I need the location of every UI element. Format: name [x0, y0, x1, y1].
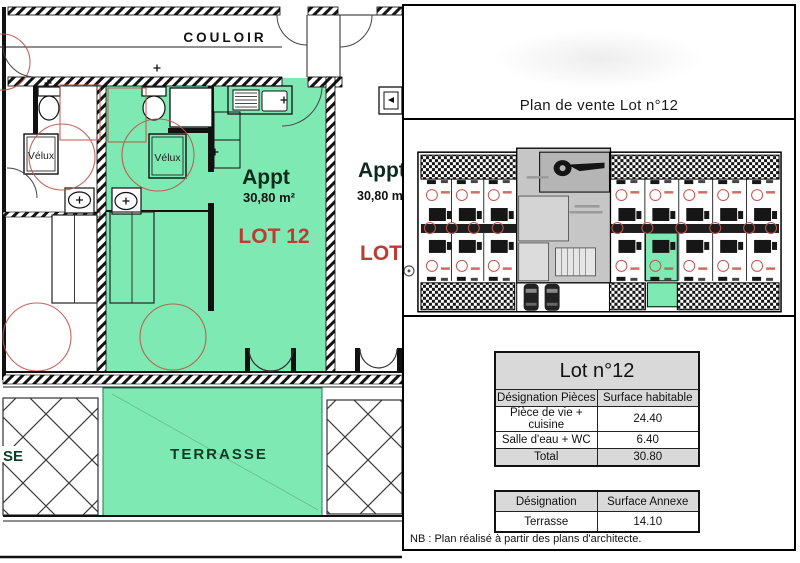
- annex-table-col2-header: Surface Annexe: [597, 491, 699, 512]
- lot12-label: LOT 12: [238, 225, 309, 248]
- annex-surface-table: Désignation Surface Annexe Terrasse 14.1…: [494, 490, 700, 533]
- central-core: [517, 148, 611, 283]
- neighbor-fixture: [379, 87, 402, 114]
- room-surface: 24.40: [597, 407, 699, 432]
- annex-table-col1-header: Désignation: [495, 491, 597, 512]
- neighbor-terrace-fragment: SE: [3, 448, 23, 465]
- total-label: Total: [495, 449, 597, 467]
- lot-table-col1-header: Désignation Pièces: [495, 390, 597, 407]
- velux-label-lot12: Vélux: [154, 152, 181, 164]
- architect-note: NB : Plan réalisé à partir des plans d'a…: [410, 533, 641, 545]
- neighbor-apartment-label: Appt: [358, 159, 402, 182]
- apartment-area-label: 30,80 m²: [243, 190, 296, 205]
- total-surface: 30.80: [597, 449, 699, 467]
- floor-plan-drawing: COULOIR Vélux Vélux Appt 30,80 m² LOT 12…: [0, 0, 402, 563]
- table-row-total: Total 30.80: [495, 449, 699, 467]
- annex-label: Terrasse: [495, 512, 597, 533]
- lot-table-title: Lot n°12: [495, 352, 699, 390]
- building-overview-plan: [404, 120, 794, 315]
- annex-surface: 14.10: [597, 512, 699, 533]
- corridor-label: COULOIR: [183, 30, 266, 45]
- tables-section: Lot n°12 Désignation Pièces Surface habi…: [404, 317, 794, 549]
- room-surface: 6.40: [597, 432, 699, 449]
- car-icon: [545, 284, 560, 311]
- info-panel: Plan de vente Lot n°12: [402, 4, 796, 551]
- page-title: Plan de vente Lot n°12: [404, 97, 794, 114]
- neighbor-area-label: 30,80 m: [357, 189, 402, 203]
- table-row: Pièce de vie + cuisine 24.40: [495, 407, 699, 432]
- building-overview-box: [404, 120, 794, 317]
- room-label: Salle d'eau + WC: [495, 432, 597, 449]
- table-row: Terrasse 14.10: [495, 512, 699, 533]
- neighbor-lot-label: LOT: [360, 242, 402, 265]
- lot-table-col2-header: Surface habitable: [597, 390, 699, 407]
- apartment-label: Appt: [242, 166, 290, 189]
- velux-label-left: Vélux: [28, 150, 55, 162]
- car-icon: [524, 284, 539, 311]
- table-row: Salle d'eau + WC 6.40: [495, 432, 699, 449]
- title-box: Plan de vente Lot n°12: [404, 6, 794, 120]
- plan-de-vente-page: COULOIR Vélux Vélux Appt 30,80 m² LOT 12…: [0, 0, 800, 563]
- terrace-label: TERRASSE: [170, 446, 268, 463]
- circled-marker: [404, 266, 414, 276]
- lot-surface-table: Lot n°12 Désignation Pièces Surface habi…: [494, 351, 700, 467]
- watermark-blob: [490, 28, 708, 90]
- room-label: Pièce de vie + cuisine: [495, 407, 597, 432]
